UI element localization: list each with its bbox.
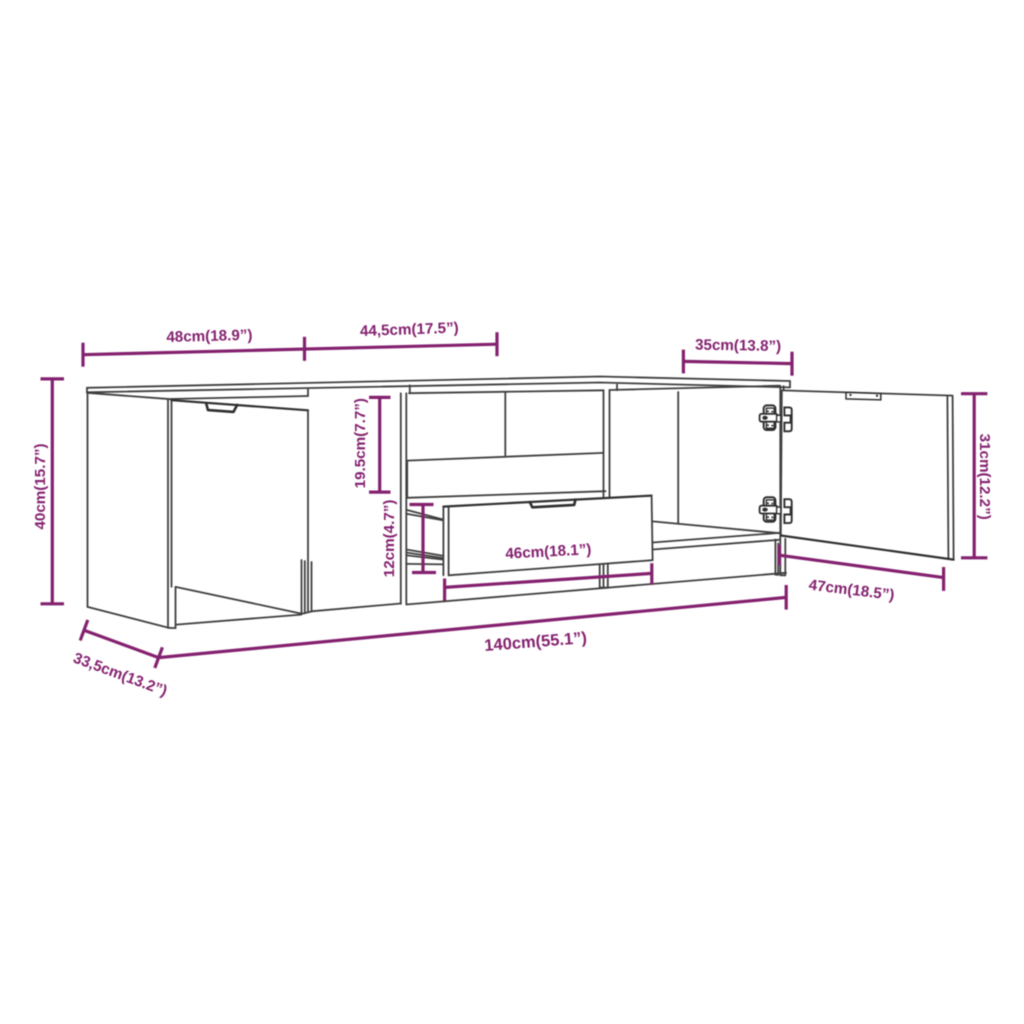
svg-text:40cm(15.7”): 40cm(15.7”) bbox=[32, 443, 49, 529]
svg-text:31cm(12.2”): 31cm(12.2”) bbox=[976, 434, 993, 520]
svg-text:44,5cm(17.5”): 44,5cm(17.5”) bbox=[360, 320, 459, 340]
svg-text:35cm(13.8”): 35cm(13.8”) bbox=[695, 337, 781, 356]
svg-text:48cm(18.9”): 48cm(18.9”) bbox=[166, 327, 253, 346]
svg-text:19.5cm(7.7”): 19.5cm(7.7”) bbox=[352, 398, 369, 488]
svg-text:12cm(4.7”): 12cm(4.7”) bbox=[381, 500, 398, 578]
